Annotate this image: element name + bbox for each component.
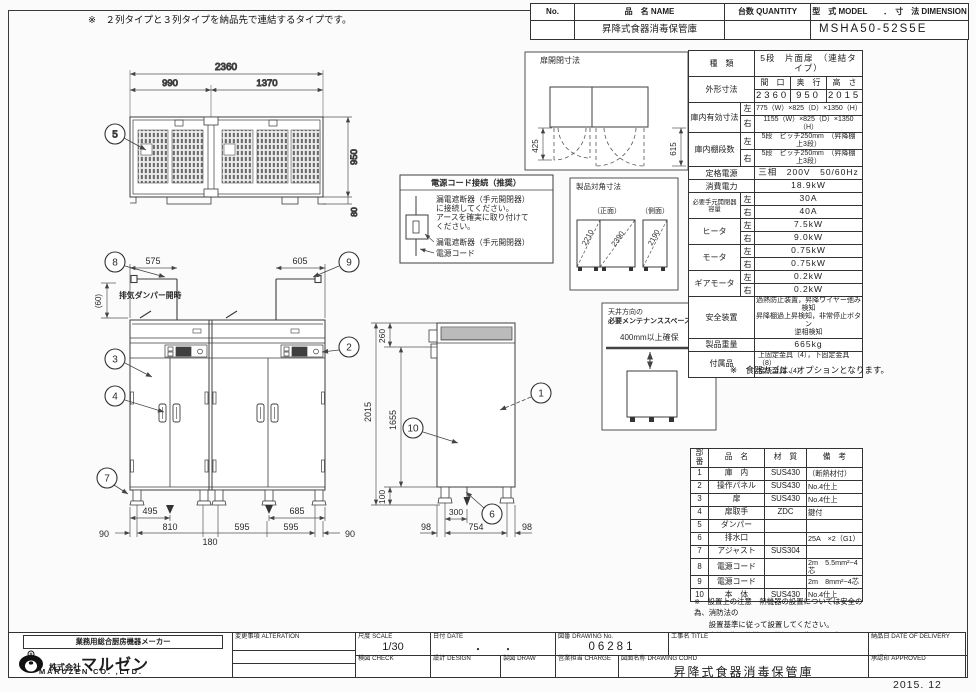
dim-90-right: 90 [345,529,355,539]
maint-line3: 400mm以上確保 [620,332,679,342]
dim-total-h: 2015 [363,402,373,422]
power-box-title: 電源コード接続（推奨） [431,178,521,188]
charge-cell: 営業担当 CHARGE [556,655,619,677]
maker-tagline: 業務用総合厨房機器メーカー [23,635,223,649]
spec-right-tag: 右 [741,150,755,167]
door-box-title: 扉開閉寸法 [540,55,580,65]
charge-label: 営業担当 CHARGE [556,655,618,663]
drawing-no-cell: 図番 DRAWING No. 06281 [556,633,669,655]
diagonal-box: 製品対角寸法 （正面） （側面） 2210 2390 2190 [570,178,678,290]
balloon-4-label: 4 [112,392,118,403]
dim-98-left: 98 [421,522,431,532]
spec-safety-line2: 昇降棚過上昇検知，非常停止ボタン [756,313,861,329]
power-cord-box: 電源コード接続（推奨） 漏電遮断器（手元開閉器） に接続してください。 アースを… [400,175,553,263]
spec-motor-left: 0.75kW [755,245,863,258]
parts-cell [807,519,863,532]
drawing-no-value: 06281 [556,641,668,653]
spec-right-tag: 右 [741,116,755,133]
spec-breaker-label: 必要手元開閉器容量 [689,193,741,219]
dim-754: 754 [468,522,483,532]
dim-595-a: 595 [234,522,249,532]
parts-cell [807,545,863,558]
project-title-label: 工事名 TITLE [669,633,868,641]
alteration-label: 変更事項 ALTERATION [233,633,355,641]
spec-watt-label: 消費電力 [689,180,755,193]
spec-outer-d: 950 [791,90,827,103]
balloon-10-label: 10 [407,424,419,435]
parts-cell: 電源コード [709,558,765,576]
diag-side-cap: （側面） [641,206,669,215]
parts-cell: No.4仕上 [807,493,863,506]
spec-outer-label: 外形寸法 [689,77,755,103]
delivery-label: 納品日 DATE OF DELIVERY [869,633,965,641]
header-no-value [531,21,575,40]
approved-cell: 承認印 APPROVED [869,655,965,677]
parts-cell: SUS430 [765,467,807,480]
parts-table: 部番 品 名 材 質 備 考 1 庫 内 SUS430 （断熱材付） 2 操作パ… [690,448,863,602]
spec-outer-w: 2360 [755,90,791,103]
dim-top-right: 1370 [256,78,277,89]
parts-cell: ダンパー [709,519,765,532]
door-open-box: 扉開閉寸法 425 615 [525,52,688,170]
spec-breaker-left: 30A [755,193,863,206]
parts-cell: アジャスト [709,545,765,558]
date-label: 日付 DATE [431,633,555,641]
header-name-label: 品 名 NAME [575,4,725,21]
power-box-line1: 漏電遮断器（手元開閉器） [436,194,530,204]
spec-weight-value: 665kg [755,338,863,351]
top-note: ※ ２列タイプと３列タイプを納品先で連結するタイプです。 [88,12,352,26]
parts-cell: 庫 内 [709,467,765,480]
front-view: 8 9 2 3 4 7 575 605 (60) [94,252,359,547]
diag-front-cap: （正面） [593,207,621,215]
dim-drain-left: 495 [142,506,157,516]
parts-cell: SUS304 [765,545,807,558]
spec-kind-label: 種 類 [689,51,755,77]
delivery-cell: 納品日 DATE OF DELIVERY [869,633,965,655]
dim-damper-h: (60) [94,294,103,309]
parts-h-no: 部番 [691,449,709,468]
parts-cell: ZDC [765,506,807,519]
maint-line2: 必要メンテナンススペース [607,316,691,325]
side-view: 1 10 6 2015 260 1655 100 300 98 754 98 [363,323,551,537]
spec-motor-right: 0.75kW [755,258,863,271]
parts-row: 4 扉取手 ZDC 鍵付 [691,506,863,519]
parts-cell: 2 [691,480,709,493]
header-model-label: 型 式 MODEL ． 寸 法 DIMENSION [811,4,969,21]
parts-cell: 2m 5.5mm²−4芯 [807,558,863,576]
scale-label: 尺度 SCALE [356,633,430,641]
parts-cell: 排水口 [709,532,765,545]
date-value: ・ ・ [431,641,555,656]
dim-inner-h: 1655 [388,410,398,430]
company-en: MARUZEN CO. ,LTD. [39,667,143,676]
parts-cell: 5 [691,519,709,532]
spec-right-tag: 右 [741,206,755,219]
spec-power-label: 定格電源 [689,167,755,180]
maint-line1: 天井方向の [608,307,643,316]
parts-cell: SUS430 [765,493,807,506]
drawing-name-cell: 図面名称 DRAWING CORD 昇降式食器消毒保管庫 [619,655,869,677]
draw-cell: 製図 DRAW [501,655,556,677]
drawing-name-label: 図面名称 DRAWING CORD [619,655,868,663]
parts-row: 1 庫 内 SUS430 （断熱材付） [691,467,863,480]
parts-cell [765,532,807,545]
balloon-1-label: 1 [538,389,544,400]
operation-panel-right [281,345,323,357]
parts-cell [765,558,807,576]
drawing-no-label: 図番 DRAWING No. [556,633,668,641]
parts-cell: 操作パネル [709,480,765,493]
dim-top-depth: 950 [349,149,360,165]
maker-cell: 業務用総合厨房機器メーカー 株式会社マルゼン MARUZEN CO. ,LTD. [9,633,233,677]
dim-leg-h: 100 [377,490,387,504]
scale-value: 1/30 [356,641,430,653]
dim-door-right: 615 [669,142,678,156]
parts-cell: SUS430 [765,480,807,493]
dim-top-left: 990 [162,78,178,89]
dim-top-rear: 80 [349,207,359,217]
spec-outer-h: 2015 [827,90,863,103]
spec-shelf-left: 5段 ピッチ250mm （昇降棚 上3段） [755,133,863,150]
dim-cord-left: 575 [145,256,160,266]
option-note: ※ 食器カゴは、オプションとなります。 [730,364,889,376]
spec-motor-label: モータ [689,245,741,271]
balloon-3-label: 3 [112,355,118,366]
header-qty-value [725,21,811,40]
check-cell: 検図 CHECK [356,655,431,677]
header-table: No. 品 名 NAME 台数 QUANTITY 型 式 MODEL ． 寸 法… [530,3,969,40]
spec-safety-label: 安全装置 [689,297,755,338]
scale-cell: 尺度 SCALE 1/30 [356,633,431,655]
spec-left-tag: 左 [741,245,755,258]
power-box-line2: に接続してください。 [436,203,514,213]
parts-row: 7 アジャスト SUS304 [691,545,863,558]
spec-shelf-label: 庫内棚段数 [689,133,741,167]
spec-left-tag: 左 [741,133,755,150]
project-title-cell: 工事名 TITLE [669,633,869,655]
spec-gear-label: ギアモータ [689,271,741,297]
parts-h-material: 材 質 [765,449,807,468]
dim-810: 810 [162,522,177,532]
spec-gear-right: 0.2kW [755,284,863,297]
spec-weight-label: 製品重量 [689,338,755,351]
power-box-line4: ください。 [436,222,475,231]
balloon-8-label: 8 [112,258,118,269]
parts-cell: 3 [691,493,709,506]
parts-cell [765,576,807,589]
spec-safety-line3: 逆相検知 [756,329,861,337]
check-label: 検図 CHECK [356,655,430,663]
header-qty-label: 台数 QUANTITY [725,4,811,21]
spec-shelf-right: 5段 ピッチ250mm （昇降棚 上3段） [755,150,863,167]
dim-door-left: 425 [531,139,540,153]
parts-cell: 電源コード [709,576,765,589]
header-model-value: MSHA50-52S5E [811,21,969,40]
approved-label: 承認印 APPROVED [869,655,965,663]
dim-drain-x: 300 [449,507,463,517]
diag-box-title: 製品対角寸法 [576,181,621,191]
balloon-6-label: 6 [489,510,495,521]
parts-cell: 1 [691,467,709,480]
spec-heater-left: 7.5kW [755,219,863,232]
spec-inner-right: 1155（W）×825（D）×1350（H） [755,116,863,133]
parts-cell: 鍵付 [807,506,863,519]
damper-note: 排気ダンパー開時 [119,290,182,300]
dim-90-left: 90 [99,529,109,539]
spec-power-value: 三相 200V 50/60Hz [755,167,863,180]
spec-safety-line1: 過熱防止装置，昇降ワイヤー弛み検知 [756,297,861,313]
parts-row: 6 排水口 25A ×2（G1） [691,532,863,545]
operation-panel-left [165,345,207,357]
install-note-1a: ※ 設置上の注意 熱機器の設置については安全の為、消防法の [694,596,870,619]
alteration-cell: 変更事項 ALTERATION [233,633,356,677]
parts-row: 8 電源コード 2m 5.5mm²−4芯 [691,558,863,576]
drawing-name-value: 昇降式食器消毒保管庫 [619,663,868,680]
balloon-9-label: 9 [346,258,352,269]
dim-595-b: 595 [283,522,298,532]
spec-left-tag: 左 [741,219,755,232]
spec-inner-label: 庫内有効寸法 [689,103,741,133]
power-box-cap1: 漏電遮断器（手元開閉器） [436,237,530,247]
spec-outer-w-label: 間 口 [755,77,791,90]
spec-kind-value: 5段 片面扉 （連結タイプ） [755,51,863,77]
spec-right-tag: 右 [741,258,755,271]
dim-drain-right: 685 [289,506,304,516]
spec-watt-value: 18.9kW [755,180,863,193]
parts-h-note: 備 考 [807,449,863,468]
parts-cell: 2m 8mm²−4芯 [807,576,863,589]
spec-left-tag: 左 [741,103,755,116]
spec-table: 種 類 5段 片面扉 （連結タイプ） 外形寸法 間 口 奥 行 高 さ 2360… [688,50,863,378]
parts-row: 5 ダンパー [691,519,863,532]
issue-date: 2015. 12 [893,679,942,691]
spec-left-tag: 左 [741,271,755,284]
parts-row: 3 扉 SUS430 No.4仕上 [691,493,863,506]
spec-inner-left: 775（W）×825（D）×1350（H） [755,103,863,116]
balloon-5-label: 5 [112,130,118,141]
spec-outer-d-label: 奥 行 [791,77,827,90]
spec-heater-right: 9.0kW [755,232,863,245]
parts-cell: 9 [691,576,709,589]
power-box-line3: アースを確実に取り付けて [436,212,529,222]
parts-h-name: 品 名 [709,449,765,468]
dim-top-total: 2360 [215,62,238,73]
spec-outer-h-label: 高 さ [827,77,863,90]
spec-right-tag: 右 [741,284,755,297]
drawing-sheet: 5 2360 990 1370 950 80 扉開閉寸法 [0,0,976,692]
header-no-label: No. [531,4,575,21]
dim-98-right: 98 [522,522,532,532]
title-block: 業務用総合厨房機器メーカー 株式会社マルゼン MARUZEN CO. ,LTD.… [8,632,966,678]
spec-left-tag: 左 [741,193,755,206]
parts-cell [765,519,807,532]
header-name-value: 昇降式食器消毒保管庫 [575,21,725,40]
dim-top-h: 260 [377,329,387,343]
parts-cell: 7 [691,545,709,558]
parts-cell: No.4仕上 [807,480,863,493]
spec-heater-label: ヒータ [689,219,741,245]
date-cell: 日付 DATE ・ ・ [431,633,556,655]
balloon-2-label: 2 [346,343,352,354]
parts-cell: 25A ×2（G1） [807,532,863,545]
dim-180: 180 [202,537,217,547]
draw-label: 製図 DRAW [501,655,555,663]
parts-cell: 8 [691,558,709,576]
top-view: 5 2360 990 1370 950 80 [105,62,360,217]
parts-cell: 扉取手 [709,506,765,519]
dim-cord-right: 605 [292,256,307,266]
power-box-cap2: 電源コード [436,249,475,258]
spec-gear-left: 0.2kW [755,271,863,284]
spec-breaker-right: 40A [755,206,863,219]
parts-cell: 4 [691,506,709,519]
parts-row: 2 操作パネル SUS430 No.4仕上 [691,480,863,493]
parts-cell: 6 [691,532,709,545]
design-label: 設計 DESIGN [431,655,500,663]
design-cell: 設計 DESIGN [431,655,501,677]
parts-cell: 扉 [709,493,765,506]
spec-right-tag: 右 [741,232,755,245]
parts-cell: （断熱材付） [807,467,863,480]
balloon-7-label: 7 [104,474,110,485]
install-note-1b: 設置基準に従って設置してください。 [694,619,870,630]
front-legs [130,490,326,505]
parts-row: 9 電源コード 2m 8mm²−4芯 [691,576,863,589]
